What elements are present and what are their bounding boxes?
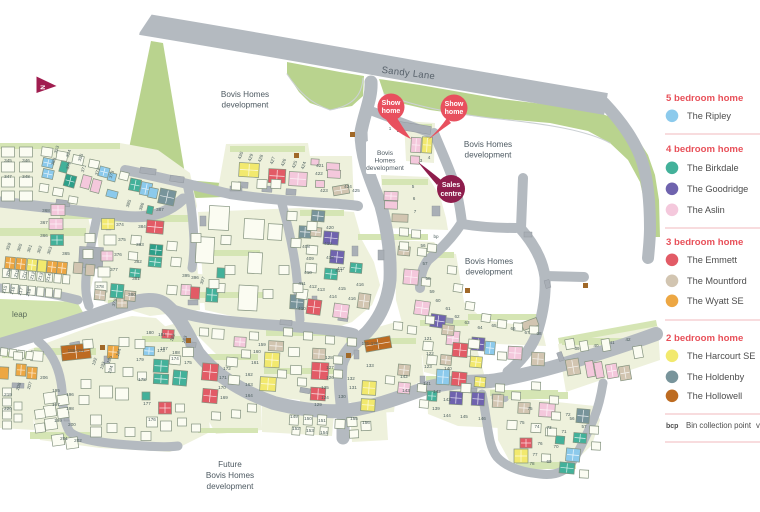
svg-text:419: 419 xyxy=(324,241,332,246)
svg-text:347: 347 xyxy=(4,174,12,179)
svg-text:346: 346 xyxy=(22,158,30,163)
svg-text:410: 410 xyxy=(298,306,306,311)
svg-text:153: 153 xyxy=(306,428,314,433)
svg-text:59: 59 xyxy=(429,289,435,294)
svg-text:68: 68 xyxy=(536,331,542,336)
svg-text:382: 382 xyxy=(134,259,142,264)
svg-text:375: 375 xyxy=(118,237,126,242)
svg-text:365: 365 xyxy=(62,251,70,256)
svg-text:378: 378 xyxy=(96,284,104,289)
svg-text:178: 178 xyxy=(138,377,146,382)
svg-text:421: 421 xyxy=(316,163,324,168)
svg-text:39: 39 xyxy=(574,346,580,351)
svg-text:416: 416 xyxy=(356,282,364,287)
svg-text:380: 380 xyxy=(128,292,136,297)
svg-text:Show: Show xyxy=(382,100,401,107)
svg-text:41: 41 xyxy=(609,340,615,345)
svg-text:186-191: 186-191 xyxy=(68,348,85,353)
svg-text:77: 77 xyxy=(532,452,538,457)
svg-text:424: 424 xyxy=(344,184,352,189)
svg-text:348: 348 xyxy=(22,174,30,179)
svg-text:384: 384 xyxy=(138,224,146,229)
svg-text:187: 187 xyxy=(160,346,168,351)
svg-text:156: 156 xyxy=(362,420,370,425)
svg-text:177: 177 xyxy=(143,401,151,406)
svg-text:146: 146 xyxy=(478,416,486,421)
svg-text:The Emmett: The Emmett xyxy=(687,255,737,265)
svg-text:Homes: Homes xyxy=(375,158,397,165)
svg-text:415: 415 xyxy=(338,286,346,291)
svg-text:163: 163 xyxy=(245,382,253,387)
svg-text:67: 67 xyxy=(524,330,530,335)
svg-text:131-138: 131-138 xyxy=(362,341,379,346)
svg-text:60: 60 xyxy=(435,298,441,303)
svg-text:121: 121 xyxy=(424,336,432,341)
svg-text:199: 199 xyxy=(54,418,62,423)
svg-text:197: 197 xyxy=(52,402,60,407)
svg-text:The Holdenby: The Holdenby xyxy=(687,372,745,382)
svg-text:5: 5 xyxy=(412,184,415,189)
svg-text:3 bedroom home: 3 bedroom home xyxy=(666,237,743,248)
svg-text:423: 423 xyxy=(320,188,328,193)
svg-text:169: 169 xyxy=(220,395,228,400)
svg-text:174: 174 xyxy=(171,356,179,361)
svg-text:409: 409 xyxy=(306,256,314,261)
svg-text:368: 368 xyxy=(42,208,50,213)
svg-text:374: 374 xyxy=(116,222,124,227)
svg-text:131: 131 xyxy=(349,385,357,390)
svg-text:381: 381 xyxy=(132,276,140,281)
svg-text:412: 412 xyxy=(309,284,317,289)
svg-text:149: 149 xyxy=(290,414,298,419)
svg-text:74: 74 xyxy=(534,424,540,429)
svg-text:The Goodridge: The Goodridge xyxy=(687,184,748,194)
svg-text:411: 411 xyxy=(298,281,306,286)
svg-text:The Aslin: The Aslin xyxy=(687,205,725,215)
svg-text:172: 172 xyxy=(223,366,231,371)
svg-text:200: 200 xyxy=(68,422,76,427)
svg-text:56: 56 xyxy=(569,416,575,421)
svg-text:128: 128 xyxy=(325,355,333,360)
svg-text:151: 151 xyxy=(318,418,326,423)
svg-text:152: 152 xyxy=(292,426,300,431)
svg-text:123: 123 xyxy=(424,364,432,369)
svg-text:144: 144 xyxy=(443,413,451,418)
svg-text:414: 414 xyxy=(329,294,337,299)
svg-text:development: development xyxy=(465,151,513,160)
svg-text:132: 132 xyxy=(347,376,355,381)
svg-text:188: 188 xyxy=(172,350,180,355)
svg-text:development: development xyxy=(366,165,404,172)
svg-text:181: 181 xyxy=(158,332,166,337)
svg-text:376: 376 xyxy=(114,252,122,257)
svg-text:70: 70 xyxy=(553,444,559,449)
svg-text:home: home xyxy=(382,108,401,115)
svg-text:7: 7 xyxy=(414,209,417,214)
svg-text:75: 75 xyxy=(527,406,533,411)
svg-text:150: 150 xyxy=(304,416,312,421)
svg-text:154: 154 xyxy=(320,430,328,435)
svg-text:bp: bp xyxy=(433,234,439,239)
svg-text:The Ripley: The Ripley xyxy=(687,111,731,121)
svg-text:61: 61 xyxy=(445,306,451,311)
svg-text:383: 383 xyxy=(136,242,144,247)
svg-text:377: 377 xyxy=(110,267,118,272)
svg-text:195: 195 xyxy=(52,388,60,393)
svg-text:The Harcourt SE: The Harcourt SE xyxy=(687,351,755,361)
svg-text:56: 56 xyxy=(420,243,426,248)
svg-text:413: 413 xyxy=(317,287,325,292)
svg-text:410: 410 xyxy=(304,270,312,275)
svg-text:62: 62 xyxy=(454,314,460,319)
svg-text:125: 125 xyxy=(321,385,329,390)
svg-text:66: 66 xyxy=(510,326,516,331)
svg-text:124: 124 xyxy=(321,395,329,400)
svg-text:Sales: Sales xyxy=(442,182,460,189)
svg-text:Future: Future xyxy=(218,460,242,469)
svg-text:196: 196 xyxy=(66,392,74,397)
svg-text:387: 387 xyxy=(156,207,164,212)
svg-text:57: 57 xyxy=(422,261,428,266)
svg-text:6: 6 xyxy=(413,196,416,201)
svg-text:395: 395 xyxy=(182,273,190,278)
svg-text:Show: Show xyxy=(445,101,464,108)
svg-text:122: 122 xyxy=(426,351,434,356)
svg-text:The Wyatt SE: The Wyatt SE xyxy=(687,296,744,306)
svg-text:centre: centre xyxy=(440,191,461,198)
svg-text:69: 69 xyxy=(546,459,552,464)
svg-text:57: 57 xyxy=(581,424,587,429)
svg-text:417: 417 xyxy=(337,266,345,271)
svg-text:219: 219 xyxy=(4,392,12,397)
svg-text:170: 170 xyxy=(218,385,226,390)
svg-text:133: 133 xyxy=(366,363,374,368)
svg-text:162: 162 xyxy=(245,372,253,377)
svg-text:201: 201 xyxy=(60,436,68,441)
svg-text:Bovis: Bovis xyxy=(377,150,394,157)
svg-text:171: 171 xyxy=(219,375,227,380)
svg-text:139: 139 xyxy=(432,406,440,411)
svg-text:home: home xyxy=(445,109,464,116)
svg-text:4: 4 xyxy=(428,155,431,160)
svg-text:Bovis Homes: Bovis Homes xyxy=(206,471,254,480)
svg-text:145: 145 xyxy=(460,414,468,419)
svg-text:345: 345 xyxy=(4,158,12,163)
svg-text:Bovis Homes: Bovis Homes xyxy=(221,90,269,99)
svg-text:416: 416 xyxy=(348,296,356,301)
svg-text:development: development xyxy=(222,101,270,110)
svg-text:development: development xyxy=(466,268,514,277)
svg-text:159: 159 xyxy=(258,342,266,347)
svg-text:2 bedroom home: 2 bedroom home xyxy=(666,333,743,344)
svg-text:leap: leap xyxy=(12,310,28,319)
svg-text:140: 140 xyxy=(444,366,452,371)
svg-text:175: 175 xyxy=(184,360,192,365)
svg-text:bcp: bcp xyxy=(666,423,678,430)
svg-text:418: 418 xyxy=(326,255,334,260)
svg-text:160: 160 xyxy=(253,349,261,354)
svg-text:The Birkdale: The Birkdale xyxy=(687,163,739,173)
svg-text:202: 202 xyxy=(74,438,82,443)
svg-text:64: 64 xyxy=(477,325,483,330)
svg-text:143: 143 xyxy=(443,397,451,402)
svg-text:development: development xyxy=(207,482,255,491)
svg-text:127: 127 xyxy=(326,365,334,370)
svg-text:176: 176 xyxy=(148,417,156,422)
svg-text:3: 3 xyxy=(420,158,423,163)
svg-text:4 bedroom home: 4 bedroom home xyxy=(666,144,743,155)
svg-text:142: 142 xyxy=(400,374,408,379)
svg-text:425: 425 xyxy=(352,188,360,193)
svg-text:396: 396 xyxy=(191,275,199,280)
svg-text:40: 40 xyxy=(593,343,599,348)
svg-text:1: 1 xyxy=(389,126,392,131)
svg-text:63: 63 xyxy=(464,320,470,325)
svg-text:206: 206 xyxy=(40,375,48,380)
svg-text:130: 130 xyxy=(338,394,346,399)
svg-text:126: 126 xyxy=(326,375,334,380)
svg-text:76: 76 xyxy=(537,441,543,446)
svg-text:Bin collection point: Bin collection point xyxy=(686,421,752,430)
svg-text:179: 179 xyxy=(136,357,144,362)
svg-text:367: 367 xyxy=(40,220,48,225)
svg-text:The Hollowell: The Hollowell xyxy=(687,391,742,401)
svg-text:142: 142 xyxy=(433,389,441,394)
svg-text:141: 141 xyxy=(423,381,431,386)
svg-text:75: 75 xyxy=(519,420,525,425)
svg-text:220: 220 xyxy=(4,406,12,411)
svg-text:143: 143 xyxy=(402,388,410,393)
svg-text:42: 42 xyxy=(625,337,631,342)
svg-text:155: 155 xyxy=(350,416,358,421)
svg-text:180: 180 xyxy=(146,330,154,335)
svg-text:73: 73 xyxy=(546,425,552,430)
svg-text:58: 58 xyxy=(425,276,431,281)
svg-text:164: 164 xyxy=(245,393,253,398)
svg-text:78: 78 xyxy=(529,461,535,466)
svg-text:The Mountford: The Mountford xyxy=(687,276,747,286)
svg-text:408: 408 xyxy=(302,244,310,249)
svg-text:Bovis Homes: Bovis Homes xyxy=(464,140,512,149)
svg-text:71: 71 xyxy=(561,429,567,434)
svg-text:420: 420 xyxy=(326,225,334,230)
svg-text:5 bedroom home: 5 bedroom home xyxy=(666,93,743,104)
svg-text:v: v xyxy=(756,421,760,430)
svg-text:198: 198 xyxy=(66,406,74,411)
svg-text:161: 161 xyxy=(251,360,259,365)
svg-text:65: 65 xyxy=(491,323,497,328)
svg-text:366: 366 xyxy=(40,233,48,238)
svg-text:129: 129 xyxy=(314,402,322,407)
svg-text:Bovis Homes: Bovis Homes xyxy=(465,257,513,266)
svg-text:422: 422 xyxy=(315,171,323,176)
svg-text:N: N xyxy=(39,85,46,90)
